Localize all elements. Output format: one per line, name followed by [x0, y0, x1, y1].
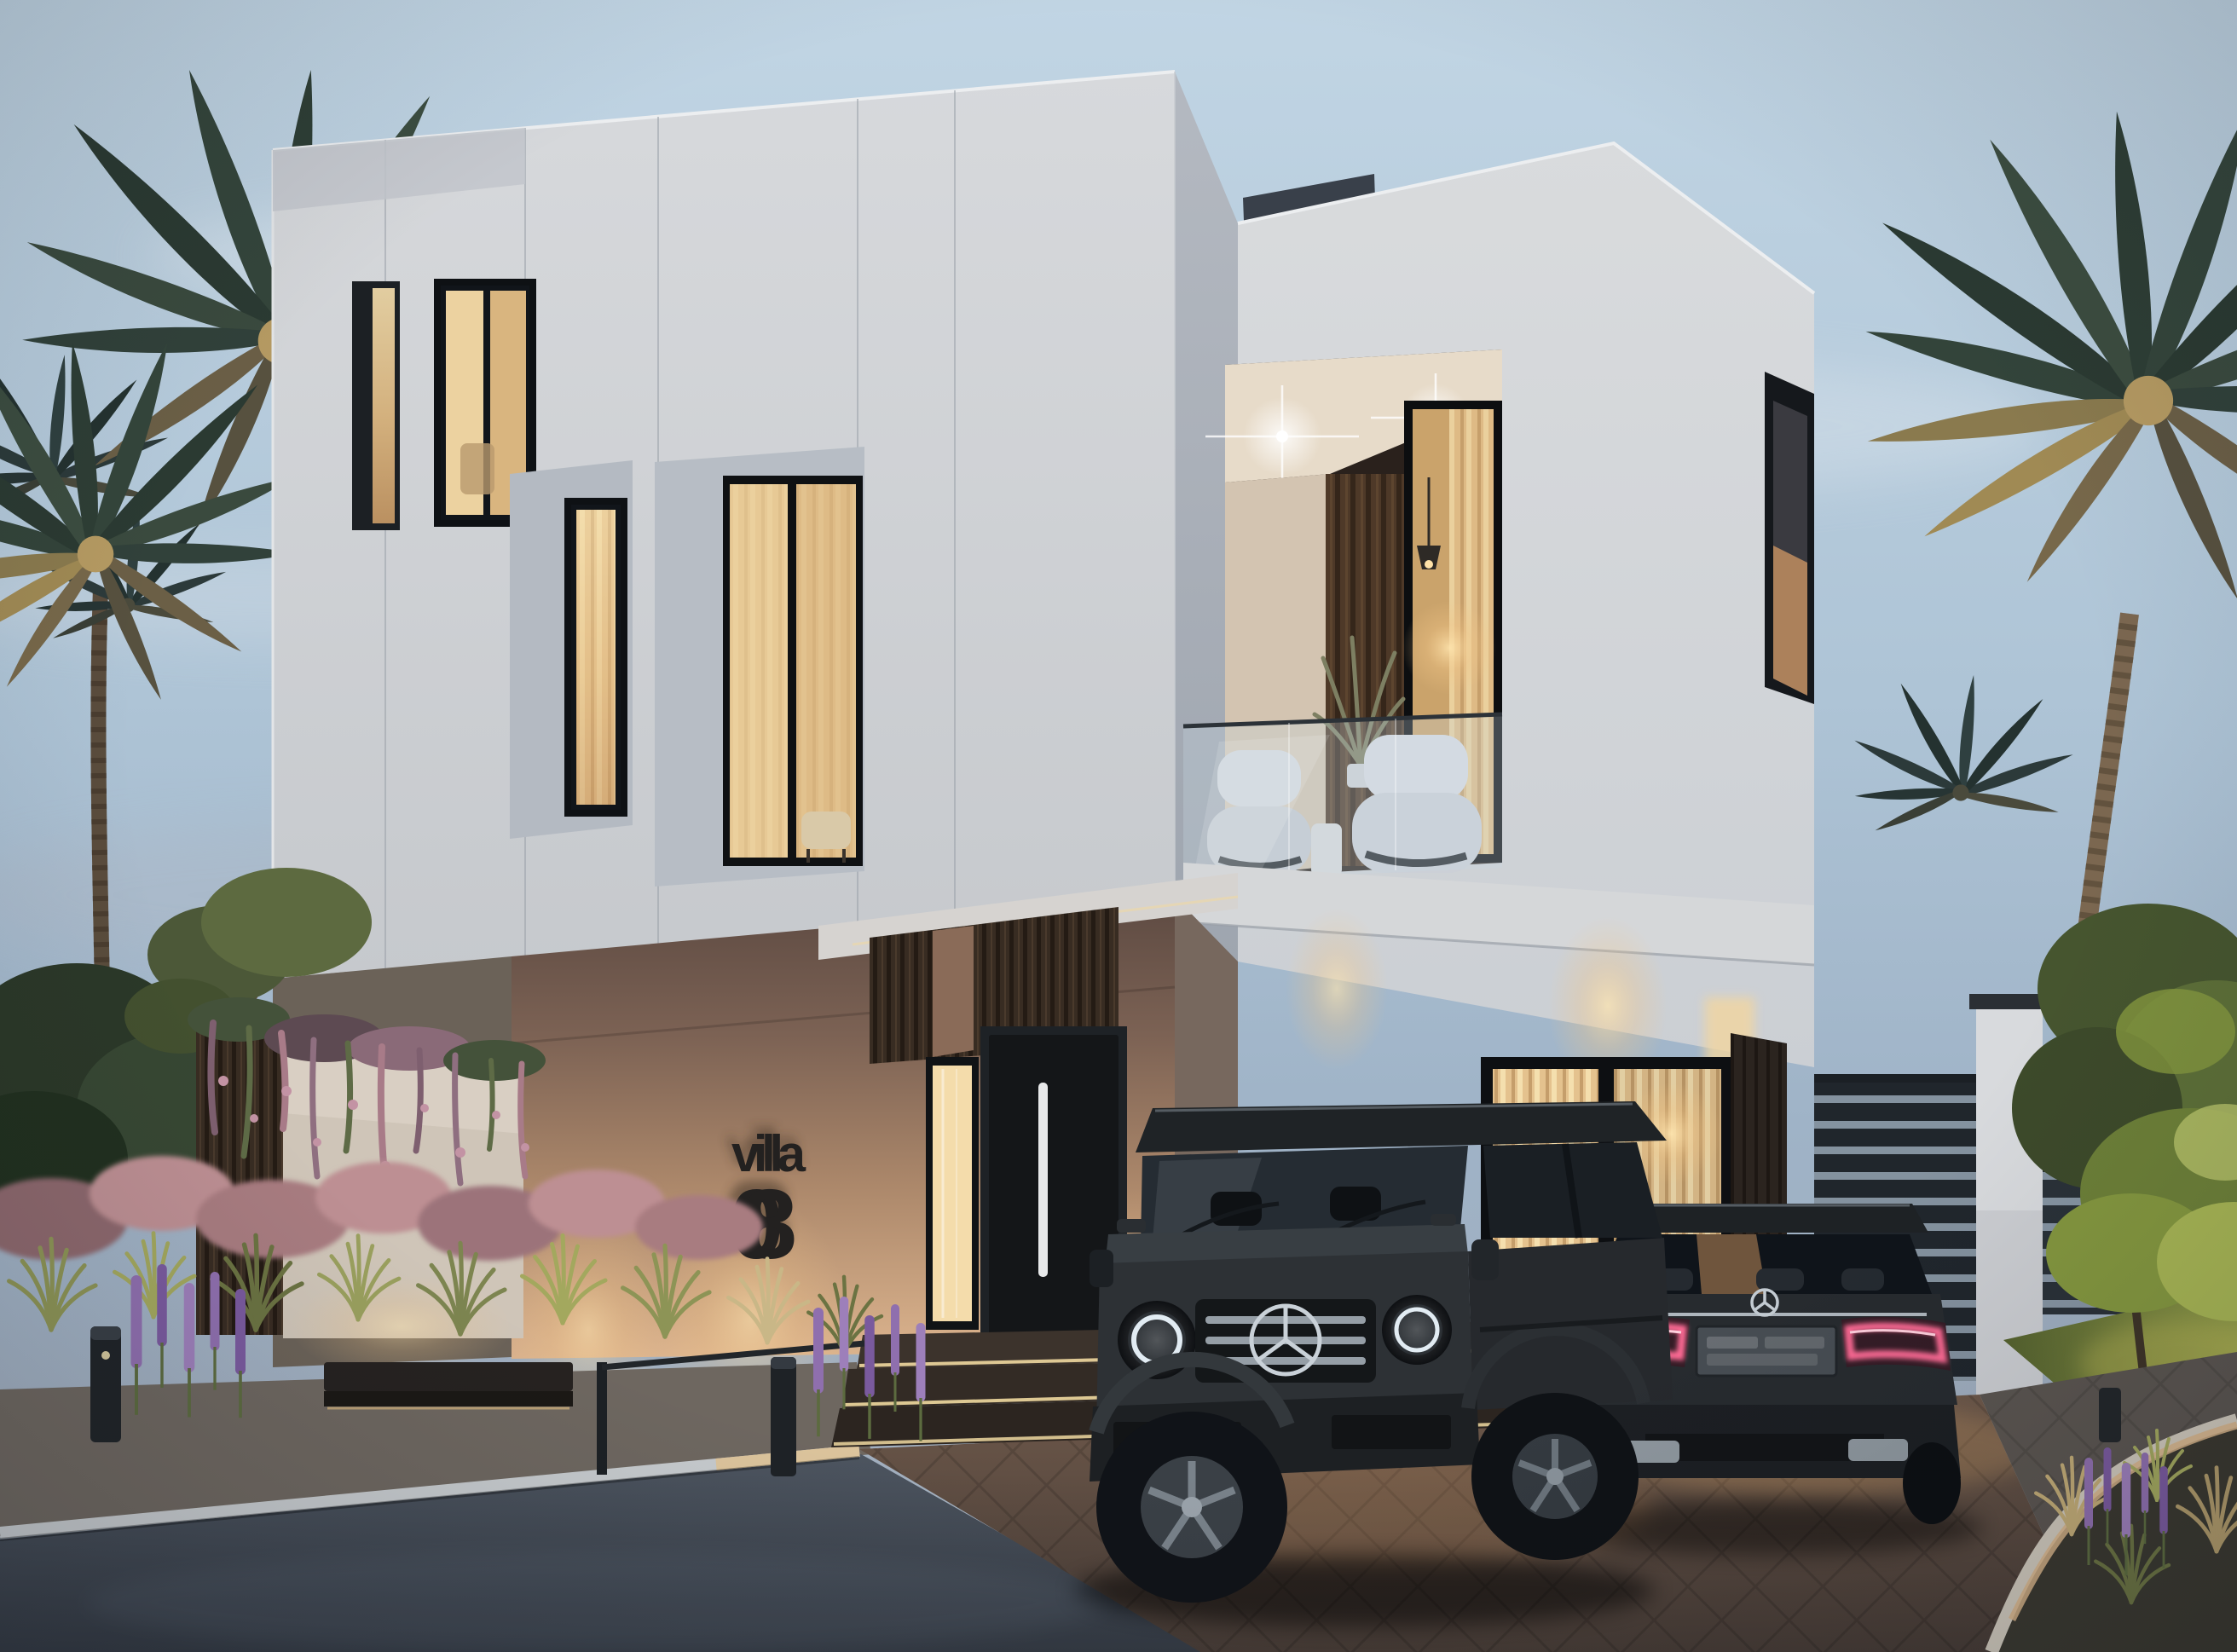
villa-exterior-render: villa 08 villa 08: [0, 0, 2237, 1652]
vignette: [0, 0, 2237, 1652]
